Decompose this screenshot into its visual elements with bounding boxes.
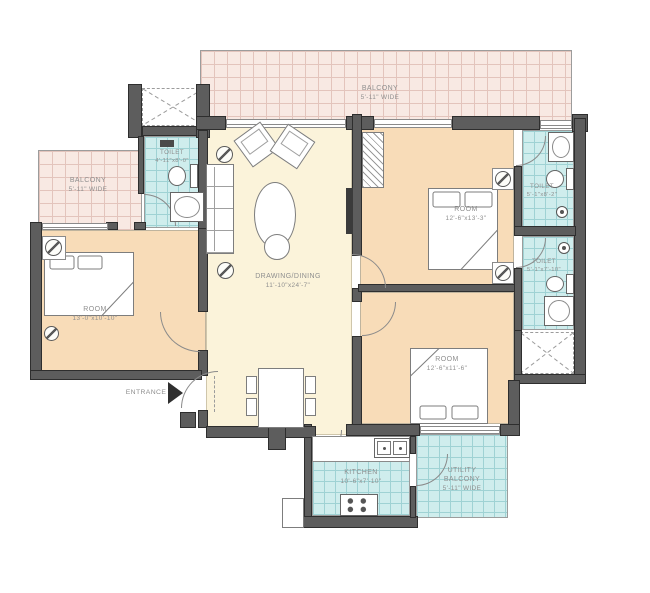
room-name: ROOM <box>73 305 118 314</box>
room-dims: 10'-6"x7'-10" <box>341 477 382 486</box>
sofa-icon <box>206 164 234 254</box>
toilet-left-label: TOILET 4'-11"x8'-0" <box>155 149 189 165</box>
wc-tank <box>190 164 198 188</box>
service-ledge <box>282 498 304 528</box>
room-dims: 5'-11" WIDE <box>443 484 482 493</box>
balcony-left-label: BALCONY 5'-11" WIDE <box>69 176 108 194</box>
shaft-top-left <box>142 88 204 126</box>
wall <box>302 516 418 528</box>
wall <box>514 226 576 236</box>
wc-bowl <box>546 276 564 292</box>
kitchen-sink-icon <box>374 438 410 458</box>
wall <box>30 370 202 380</box>
room-dims: 5'-1"x7'-10" <box>527 266 561 274</box>
fan-icon <box>44 326 59 341</box>
wall <box>128 84 142 138</box>
toilet-wc-icon <box>168 164 198 188</box>
room-name: TOILET <box>527 258 561 266</box>
entrance-threshold-line <box>214 376 215 412</box>
fan-icon <box>495 265 511 281</box>
shaft-right <box>520 332 574 374</box>
wall <box>352 114 362 256</box>
room-name: DRAWING/DINING <box>255 272 321 281</box>
wall <box>514 330 522 376</box>
wc-tank <box>566 274 574 294</box>
window <box>42 223 108 230</box>
room-name: BALCONY <box>69 176 108 185</box>
fan-icon <box>42 236 66 260</box>
wall <box>268 426 286 450</box>
wall <box>180 412 196 428</box>
washbasin-icon <box>544 296 574 326</box>
utility-balcony-label: UTILITY BALCONY 5'-11" WIDE <box>443 466 482 493</box>
room-dims: 12'-6"x13'-3" <box>446 214 487 223</box>
x-brace-icon <box>521 333 573 373</box>
fan-icon <box>216 146 233 163</box>
tv-icon <box>346 188 353 234</box>
window <box>540 120 572 129</box>
sink-bowl <box>393 441 407 455</box>
room-name: TOILET <box>155 149 189 157</box>
room-name: ROOM <box>427 355 467 364</box>
stove-icon <box>340 494 378 516</box>
wc-tank <box>566 168 574 190</box>
fan-icon <box>492 168 514 190</box>
room-dims: 13'-0"x10'-10" <box>73 314 118 323</box>
wall <box>410 486 416 518</box>
room-name: BALCONY <box>361 84 400 93</box>
kitchen-label: KITCHEN 10'-6"x7'-10" <box>341 468 382 486</box>
shower-icon <box>558 242 570 254</box>
wall <box>508 380 520 430</box>
entrance-arrow-icon <box>168 382 183 404</box>
wall <box>304 424 312 518</box>
toilet-right-upper-label: TOILET 5'-1"x8'-2" <box>527 183 557 199</box>
shower-icon <box>556 206 568 218</box>
wall <box>514 166 522 228</box>
wardrobe-icon <box>362 132 384 188</box>
toilet-right-lower-label: TOILET 5'-1"x7'-10" <box>527 258 561 274</box>
room-dims: 5'-1"x8'-2" <box>527 191 557 199</box>
toilet-wc-icon <box>546 274 574 294</box>
room-bottom-right-label: ROOM 12'-6"x11'-6" <box>427 355 467 373</box>
wall <box>30 222 42 380</box>
balcony-top-label: BALCONY 5'-11" WIDE <box>361 84 400 102</box>
wc-bowl <box>168 166 186 186</box>
wall <box>514 268 522 332</box>
room-dims: 4'-11"x8'-0" <box>155 157 189 165</box>
dining-chair-icon <box>246 376 257 394</box>
window <box>420 426 500 434</box>
wall <box>410 436 416 454</box>
drawing-dining-label: DRAWING/DINING 11'-10"x24'-7" <box>255 272 321 290</box>
fan-icon <box>495 171 511 187</box>
stool-icon <box>264 234 290 260</box>
room-top-right-label: ROOM 12'-6"x13'-3" <box>446 205 487 223</box>
wall <box>196 116 226 130</box>
room-left-label: ROOM 13'-0"x10'-10" <box>73 305 118 323</box>
room-dims: 11'-10"x24'-7" <box>255 281 321 290</box>
room-dims: 5'-11" WIDE <box>361 93 400 102</box>
dining-table-icon <box>258 368 304 428</box>
bed-icon <box>428 188 498 270</box>
dining-chair-icon <box>246 398 257 416</box>
fan-icon <box>45 239 62 256</box>
room-name: UTILITY <box>443 466 482 475</box>
room-dims: 12'-6"x11'-6" <box>427 364 467 373</box>
washbasin-icon <box>548 132 574 162</box>
entrance-text: ENTRANCE <box>126 388 167 397</box>
window <box>374 119 452 128</box>
wall <box>514 374 586 384</box>
wall <box>500 424 520 436</box>
floor-plan: BALCONY 5'-11" WIDE BALCONY 5'-11" WIDE … <box>0 0 650 593</box>
wall <box>352 336 362 428</box>
washbasin-icon <box>170 192 204 222</box>
room-name: TOILET <box>527 183 557 191</box>
dining-chair-icon <box>305 398 316 416</box>
room-name: ROOM <box>446 205 487 214</box>
wall <box>574 118 586 380</box>
room-name: BALCONY <box>443 475 482 484</box>
wall <box>452 116 540 130</box>
fan-icon <box>217 262 234 279</box>
sink-bowl <box>377 441 391 455</box>
dining-chair-icon <box>305 376 316 394</box>
fan-icon <box>492 262 514 284</box>
entrance-label: ENTRANCE <box>126 388 167 397</box>
wall <box>346 424 420 436</box>
x-brace-icon <box>143 89 203 125</box>
room-dims: 5'-11" WIDE <box>69 185 108 194</box>
shower-mixer-icon <box>160 140 174 147</box>
wall <box>138 136 144 194</box>
room-name: KITCHEN <box>341 468 382 477</box>
